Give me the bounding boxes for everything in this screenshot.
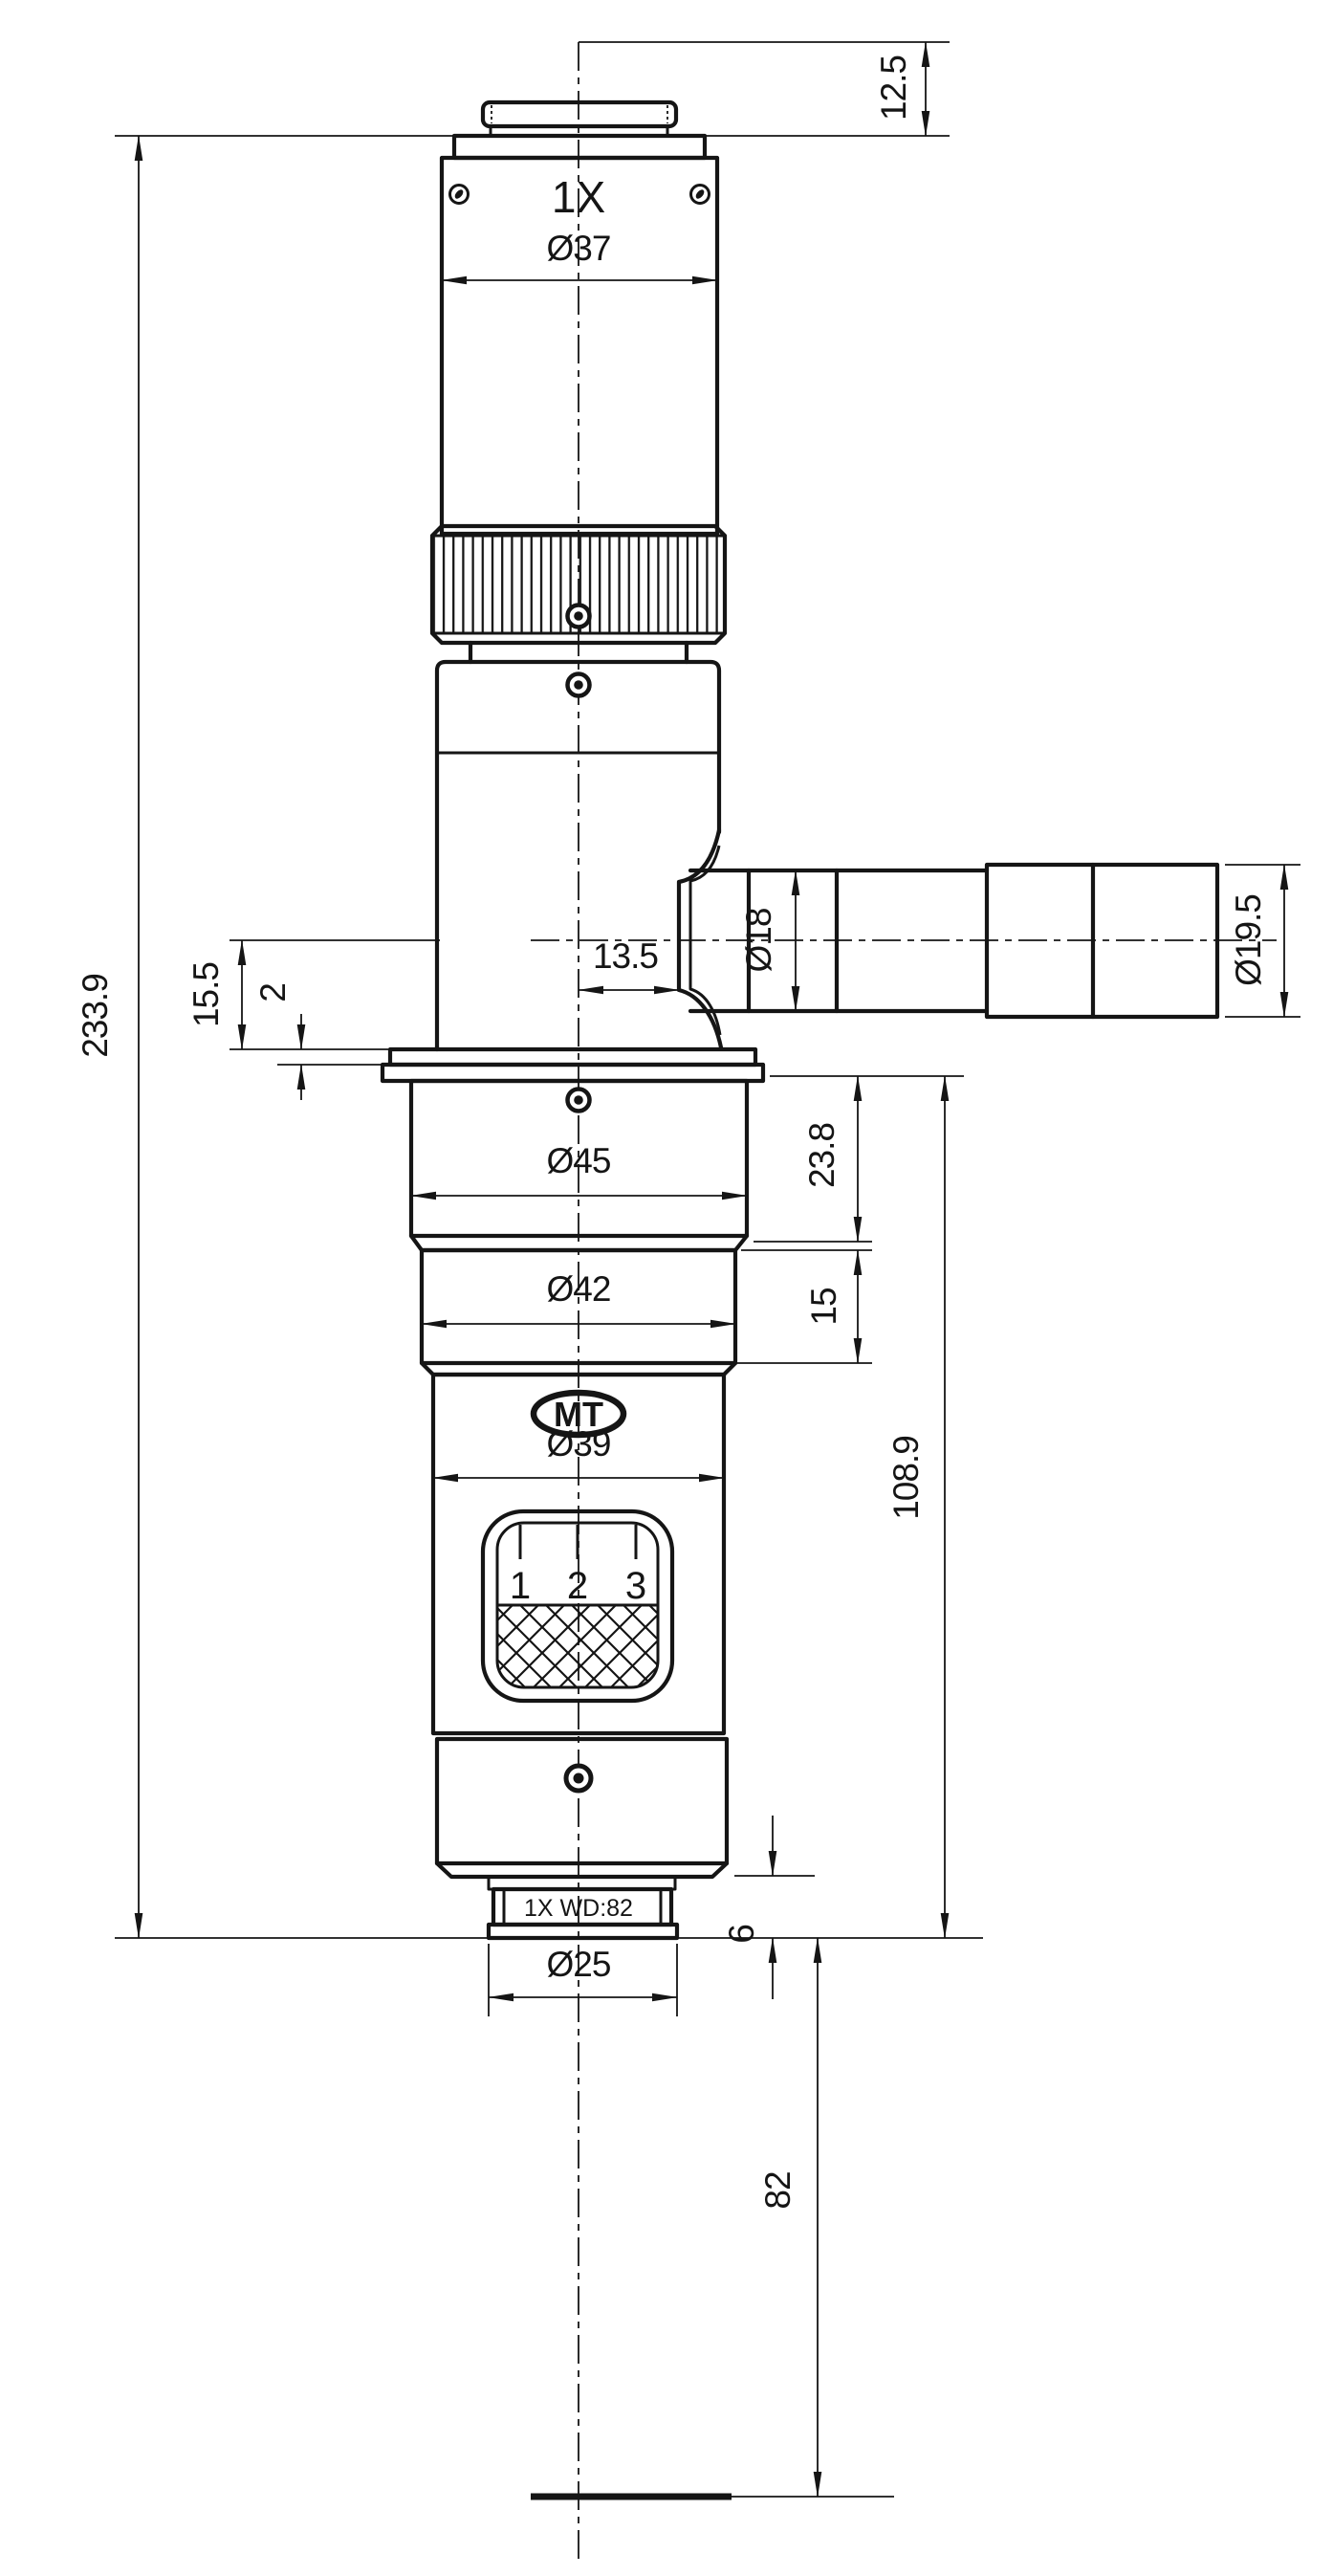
objective-label: 1X WD:82 (524, 1895, 633, 1922)
zoom-grip-hatch (497, 1605, 658, 1687)
dim-total-height-value: 233.9 (76, 974, 115, 1058)
set-screw-left (450, 186, 469, 204)
dim-arm-offset-value: 13.5 (593, 936, 658, 976)
dim-port-diameter-value: Ø18 (739, 909, 778, 973)
dim-total-height: 233.9 (76, 136, 454, 1938)
dim-flange-diameter-value: Ø45 (547, 1141, 611, 1180)
screw-hole-flange (568, 1090, 590, 1112)
dim-port-end-diameter: Ø19.5 (1225, 865, 1300, 1017)
focus-knurled-ring (432, 526, 725, 643)
dim-arm-axis-drop-value: 15.5 (186, 962, 226, 1027)
dim-working-distance: 82 (758, 1938, 818, 2497)
mount-flange (454, 136, 705, 158)
dim-port-end-diameter-value: Ø19.5 (1229, 894, 1268, 986)
dim-flange-height: 23.8 (754, 1076, 964, 1242)
dim-cap-height-value: 12.5 (874, 55, 913, 121)
dim-flange-lip-value: 2 (253, 983, 293, 1002)
technical-drawing-canvas: 1X (0, 0, 1333, 2576)
zoom-window: 1 2 3 (483, 1511, 672, 1701)
screw-hole-ring (566, 1766, 591, 1791)
dim-lower-height-value: 108.9 (886, 1436, 926, 1520)
dim-objective-diameter: Ø25 (489, 1944, 677, 2016)
zoom-mark-3: 3 (625, 1565, 646, 1607)
dim-mid-height: 15 (730, 1250, 872, 1363)
dim-working-distance-value: 82 (758, 2171, 798, 2209)
dim-body-diameter-value: Ø37 (547, 229, 611, 268)
lens-assembly-drawing: 1X (0, 0, 1333, 2576)
dim-arm-axis-drop: 15.5 (186, 940, 440, 1049)
screw-hole-body (568, 674, 590, 696)
camera-mount-cap (483, 102, 676, 136)
magnification-label: 1X (552, 172, 605, 222)
retaining-ring (437, 1739, 727, 1877)
flange-plates (382, 1049, 763, 1081)
dim-flange-lip: 2 (253, 983, 382, 1100)
zoom-mark-2: 2 (567, 1565, 588, 1607)
dim-flange-height-value: 23.8 (802, 1123, 841, 1188)
dim-lower-diameter-value: Ø39 (547, 1424, 611, 1464)
dim-body-diameter: Ø37 (442, 229, 717, 280)
zoom-mark-1: 1 (510, 1565, 531, 1607)
dim-mid-height-value: 15 (804, 1288, 843, 1326)
main-body-tube: 1X (442, 158, 717, 534)
screw-hole-focus-ring (568, 605, 590, 627)
dim-mid-diameter-value: Ø42 (547, 1269, 611, 1309)
dim-objective-step: 6 (722, 1816, 815, 1999)
dim-arm-offset: 13.5 (579, 936, 679, 990)
dim-objective-diameter-value: Ø25 (547, 1945, 611, 1984)
dim-objective-step-value: 6 (722, 1925, 761, 1944)
dim-cap-height: 12.5 (579, 42, 950, 136)
set-screw-right (691, 186, 710, 204)
objective-lens: 1X WD:82 (489, 1877, 677, 1938)
dim-lower-height: 108.9 (886, 1076, 945, 1938)
